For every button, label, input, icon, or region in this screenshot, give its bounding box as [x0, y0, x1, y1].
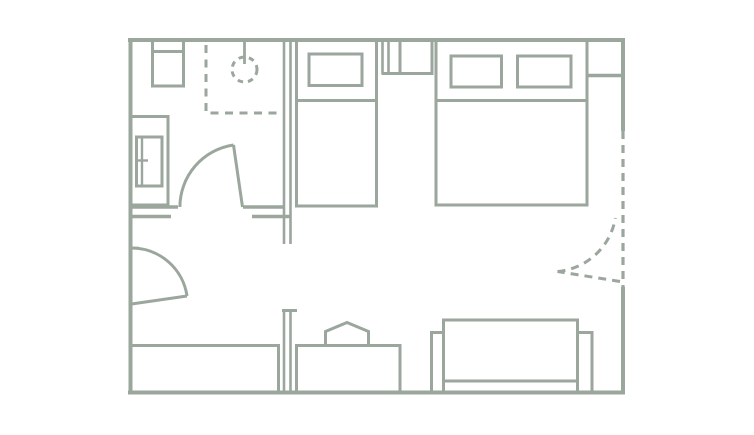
balcony-door-swing-arc-dashed [558, 218, 616, 272]
balcony-door-leaf-dashed [558, 272, 621, 282]
desk [297, 346, 401, 393]
wardrobe [131, 346, 279, 393]
bathroom-door-leaf [234, 145, 243, 207]
double-bed-pillow-right [518, 56, 572, 87]
sink [153, 40, 184, 86]
nightstand [400, 40, 432, 74]
sofa-seat [444, 320, 578, 381]
double-bed-pillow-left [451, 56, 502, 87]
floor-plan-svg [0, 0, 754, 435]
single-bed-pillow [309, 54, 362, 86]
sofa-armrest-left [432, 333, 444, 393]
entry-door-swing-arc [132, 248, 188, 296]
sofa-armrest-right [578, 333, 593, 393]
double-bed [436, 40, 587, 205]
desk-chair [326, 323, 369, 346]
floor-plan-canvas [0, 0, 754, 435]
entry-door-leaf [132, 296, 188, 304]
bathroom-door-swing-arc [180, 145, 234, 207]
